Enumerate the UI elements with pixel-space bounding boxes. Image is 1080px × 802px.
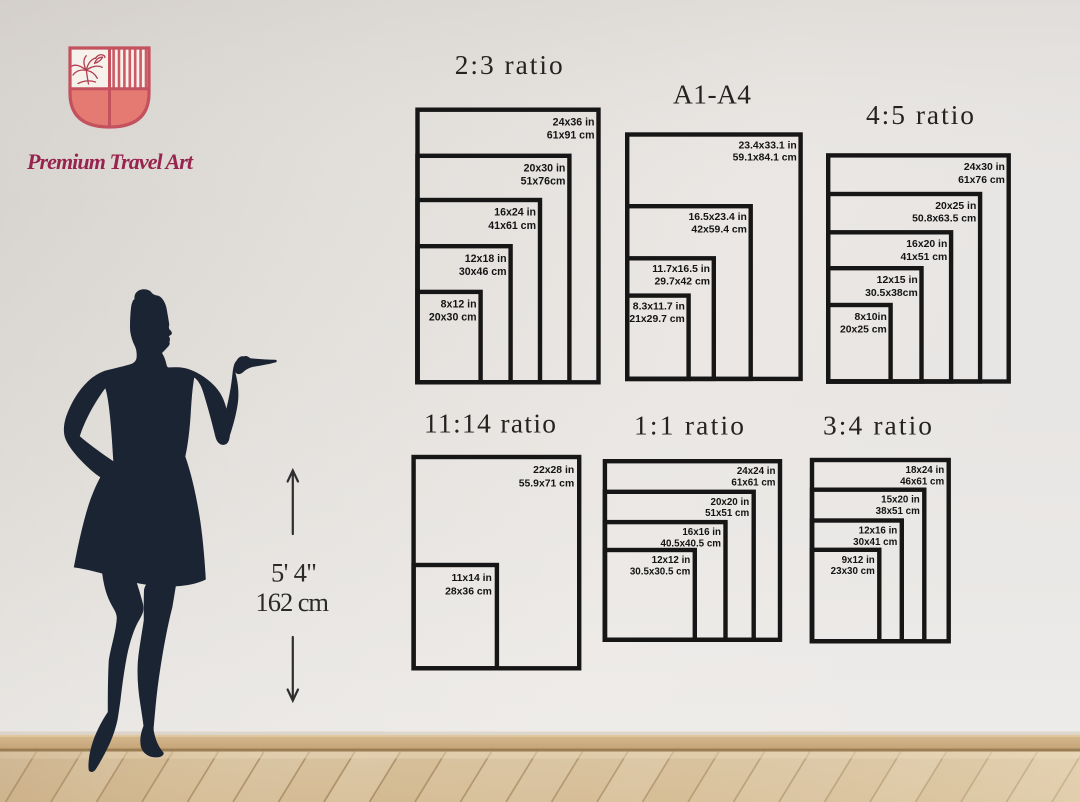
svg-text:59.1x84.1 cm: 59.1x84.1 cm [733, 153, 797, 164]
svg-text:30.5x30.5 cm: 30.5x30.5 cm [630, 566, 691, 577]
svg-text:20x30 cm: 20x30 cm [429, 312, 477, 324]
svg-text:18x24 in: 18x24 in [906, 465, 945, 476]
svg-text:24x24 in: 24x24 in [737, 466, 776, 477]
svg-text:12x18 in: 12x18 in [465, 253, 507, 265]
svg-text:11:14 ratio: 11:14 ratio [424, 409, 556, 439]
svg-text:12x16 in: 12x16 in [859, 526, 898, 537]
svg-text:61x61 cm: 61x61 cm [731, 478, 775, 489]
svg-text:30x41 cm: 30x41 cm [853, 537, 897, 548]
svg-text:1:1 ratio: 1:1 ratio [634, 410, 744, 440]
svg-text:61x76 cm: 61x76 cm [958, 175, 1005, 186]
svg-text:2:3 ratio: 2:3 ratio [455, 50, 563, 80]
svg-text:40.5x40.5 cm: 40.5x40.5 cm [661, 538, 722, 549]
svg-text:16x20 in: 16x20 in [906, 239, 947, 250]
svg-text:20x25 cm: 20x25 cm [840, 325, 887, 336]
svg-text:162 cm: 162 cm [256, 587, 330, 617]
svg-text:12x12 in: 12x12 in [652, 555, 691, 566]
svg-text:23x30 cm: 23x30 cm [831, 566, 875, 577]
svg-text:20x30 in: 20x30 in [524, 162, 566, 174]
svg-text:51x76cm: 51x76cm [521, 176, 566, 188]
svg-text:9x12 in: 9x12 in [842, 555, 875, 566]
svg-text:51x51 cm: 51x51 cm [705, 508, 749, 519]
svg-text:4:5 ratio: 4:5 ratio [866, 100, 974, 130]
svg-text:12x15 in: 12x15 in [877, 275, 918, 286]
svg-text:20x25 in: 20x25 in [935, 201, 976, 212]
svg-text:16x16 in: 16x16 in [682, 527, 721, 538]
svg-text:15x20 in: 15x20 in [881, 495, 920, 506]
svg-text:50.8x63.5 cm: 50.8x63.5 cm [912, 214, 976, 225]
svg-text:A1-A4: A1-A4 [673, 79, 751, 109]
svg-text:24x36 in: 24x36 in [553, 116, 595, 128]
svg-text:8x12 in: 8x12 in [441, 299, 477, 311]
svg-text:30.5x38cm: 30.5x38cm [865, 288, 918, 299]
svg-text:11.7x16.5 in: 11.7x16.5 in [652, 264, 710, 275]
svg-text:21x29.7 cm: 21x29.7 cm [629, 314, 684, 325]
svg-text:5' 4": 5' 4" [271, 557, 317, 587]
svg-text:42x59.4 cm: 42x59.4 cm [691, 224, 746, 235]
svg-text:16x24 in: 16x24 in [494, 207, 536, 219]
svg-text:20x20 in: 20x20 in [711, 497, 750, 508]
svg-text:3:4 ratio: 3:4 ratio [823, 410, 932, 440]
svg-text:11x14 in: 11x14 in [451, 573, 491, 584]
svg-text:41x61 cm: 41x61 cm [488, 220, 536, 232]
svg-text:38x51 cm: 38x51 cm [876, 506, 920, 517]
svg-text:55.9x71 cm: 55.9x71 cm [519, 479, 574, 490]
svg-text:22x28 in: 22x28 in [533, 465, 574, 476]
svg-text:46x61 cm: 46x61 cm [900, 476, 944, 487]
svg-text:41x51 cm: 41x51 cm [900, 252, 947, 263]
svg-text:8.3x11.7 in: 8.3x11.7 in [633, 301, 685, 312]
svg-text:30x46 cm: 30x46 cm [459, 266, 507, 278]
svg-text:29.7x42 cm: 29.7x42 cm [655, 277, 710, 288]
svg-text:28x36 cm: 28x36 cm [445, 587, 492, 598]
svg-text:Premium Travel Art: Premium Travel Art [26, 149, 194, 174]
svg-text:23.4x33.1 in: 23.4x33.1 in [738, 140, 796, 151]
svg-text:8x10in: 8x10in [854, 312, 886, 323]
svg-text:61x91 cm: 61x91 cm [547, 130, 595, 142]
svg-text:24x30 in: 24x30 in [964, 162, 1005, 173]
svg-text:16.5x23.4 in: 16.5x23.4 in [689, 212, 747, 223]
